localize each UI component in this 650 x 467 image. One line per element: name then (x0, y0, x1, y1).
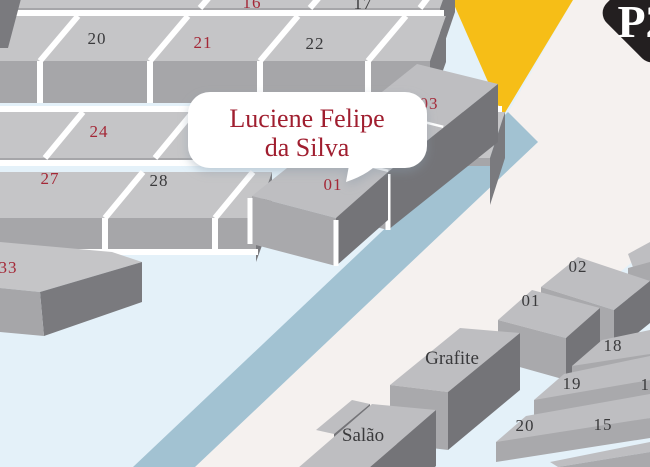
annex-20-label[interactable]: 20 (516, 416, 535, 435)
hall-badge-label: P2 (617, 0, 650, 47)
booth-27-label[interactable]: 27 (41, 169, 60, 188)
booth-24-label[interactable]: 24 (90, 122, 109, 141)
tooltip-name-line1: Luciene Felipe (229, 104, 384, 133)
annex-02-label[interactable]: 02 (569, 257, 588, 276)
row2-top-face[interactable] (0, 16, 446, 61)
booth-21-label[interactable]: 21 (194, 33, 213, 52)
annex-18-label[interactable]: 18 (604, 336, 623, 355)
row1-top-face[interactable] (0, 0, 455, 8)
tooltip-name-line2: da Silva (265, 133, 350, 162)
booth-22-label[interactable]: 22 (306, 34, 325, 53)
booth-20-label[interactable]: 20 (88, 29, 107, 48)
area-salao-label: Salão (342, 425, 384, 446)
block33-front-face (0, 288, 44, 336)
area-grafite-label: Grafite (425, 348, 479, 369)
booth-01-label[interactable]: 01 (324, 175, 343, 194)
floorplan-map: 16 17 20 21 22 24 27 28 03 01 33 02 01 1… (0, 0, 650, 467)
booth-17-label[interactable]: 17 (354, 0, 373, 13)
booth-28-label[interactable]: 28 (150, 171, 169, 190)
booth-33-label[interactable]: 33 (0, 258, 18, 277)
annex-15-label[interactable]: 15 (594, 415, 613, 434)
annex-19-label[interactable]: 19 (563, 374, 582, 393)
booth-16-label[interactable]: 16 (243, 0, 262, 12)
annex-01-label[interactable]: 01 (522, 291, 541, 310)
annex-16-label[interactable]: 16 (641, 375, 650, 394)
